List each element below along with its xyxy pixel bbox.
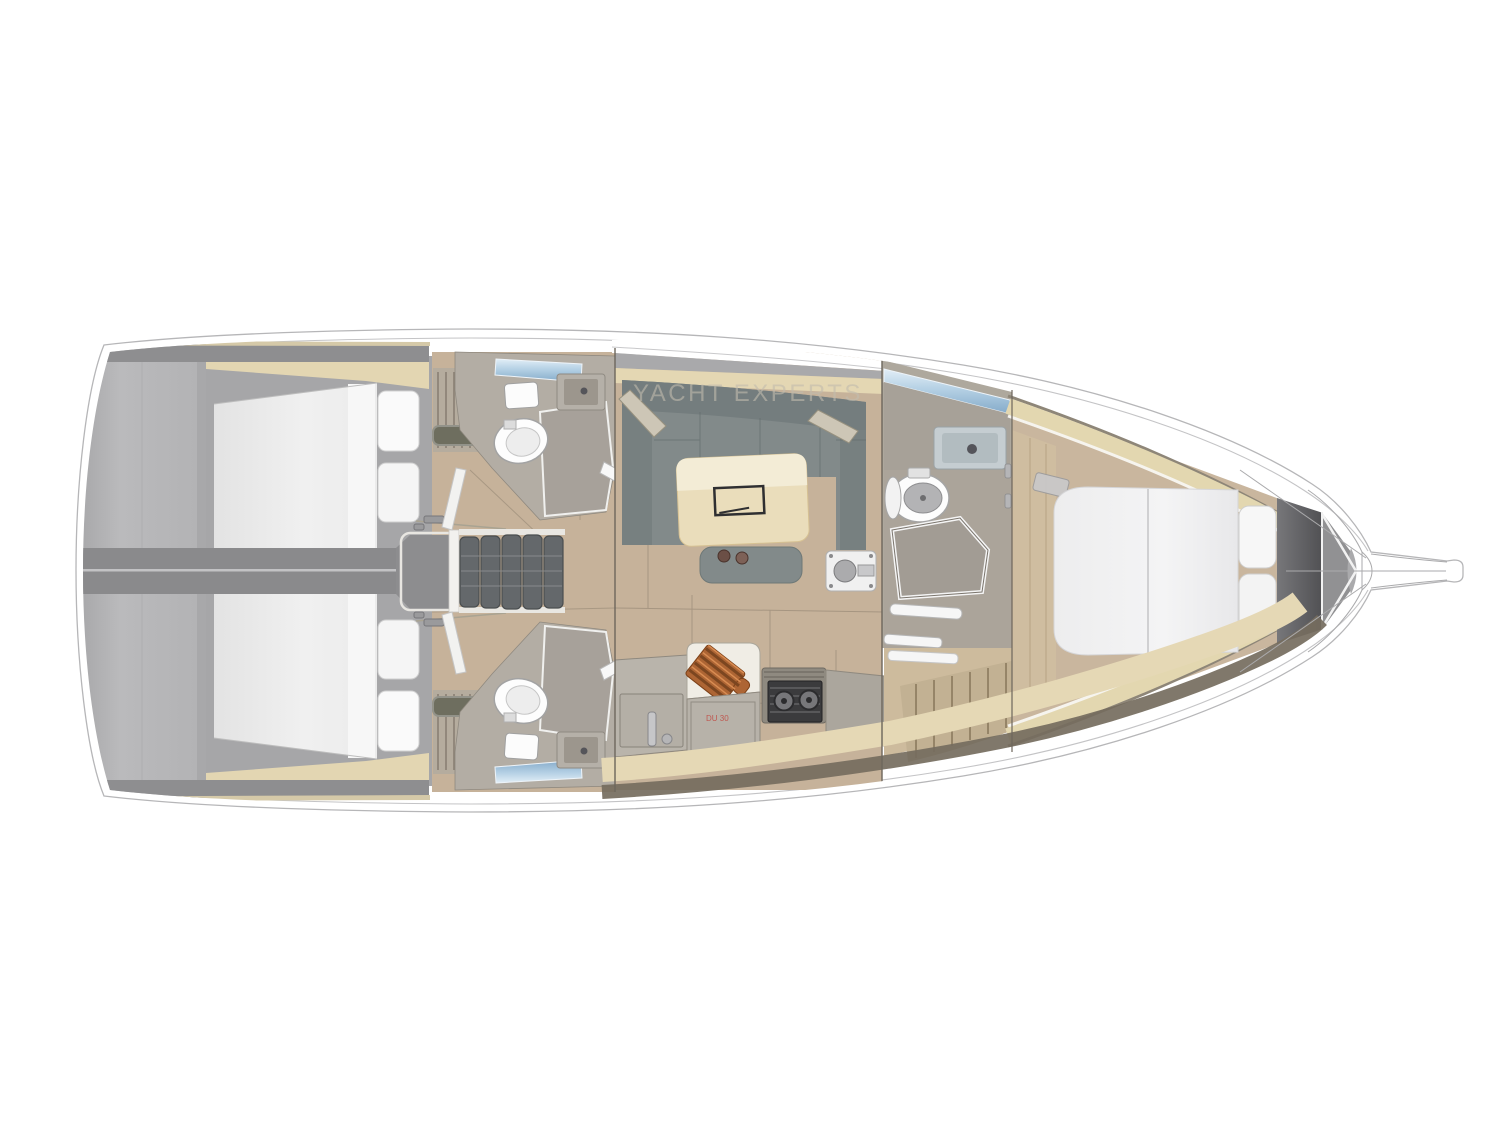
svg-text:YACHT EXPERTS: YACHT EXPERTS bbox=[633, 380, 863, 407]
svg-text:DU 30: DU 30 bbox=[706, 714, 729, 723]
